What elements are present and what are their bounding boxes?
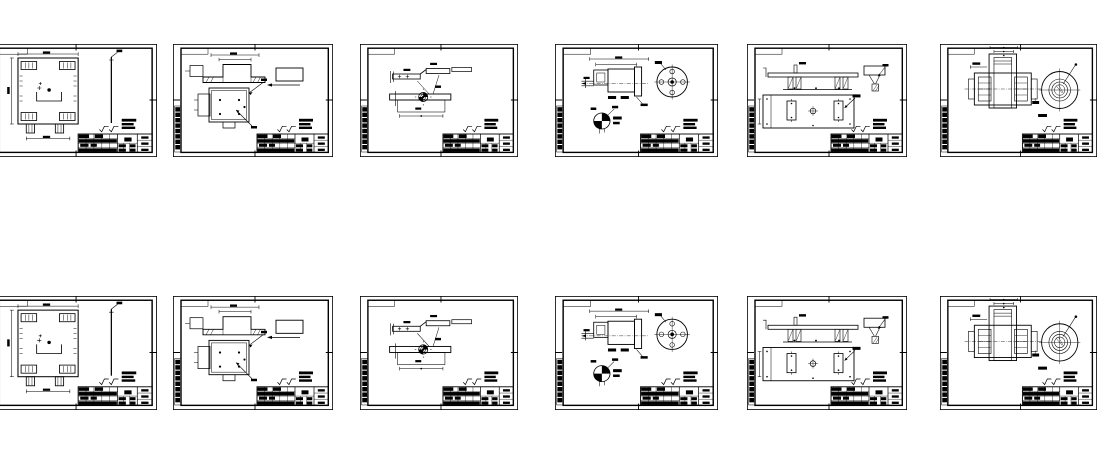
- sheet-canvas: [940, 44, 1097, 157]
- drawing-sheet-r1-c6[interactable]: [940, 44, 1097, 157]
- drawing-sheet-r1-c4[interactable]: [555, 44, 718, 157]
- sheet-canvas: [173, 296, 333, 410]
- sheet-frame: [360, 296, 517, 409]
- sheet-canvas: [0, 296, 157, 410]
- drawing-sheet-r2-c1[interactable]: [0, 296, 157, 410]
- sheet-frame: [555, 296, 717, 409]
- drawing-sheet-r2-c2[interactable]: [173, 296, 333, 410]
- sheet-canvas: [173, 44, 333, 157]
- sheet-canvas: [747, 296, 907, 410]
- sheet-frame: [747, 296, 906, 409]
- drawing-sheet-r1-c2[interactable]: [173, 44, 333, 157]
- sheet-canvas: [0, 44, 157, 157]
- drawing-sheet-r2-c5[interactable]: [747, 296, 907, 410]
- sheet-frame: [940, 44, 1096, 156]
- cad-drawings-gallery: [0, 0, 1104, 461]
- sheet-frame: [360, 44, 517, 156]
- drawing-sheet-r1-c1[interactable]: [0, 44, 157, 157]
- sheet-frame: [173, 44, 332, 156]
- sheet-canvas: [360, 296, 518, 410]
- drawing-sheet-r2-c3[interactable]: [360, 296, 518, 410]
- sheet-frame: [173, 296, 332, 409]
- sheet-frame: [940, 296, 1096, 409]
- sheet-canvas: [747, 44, 907, 157]
- drawing-sheet-r1-c3[interactable]: [360, 44, 518, 157]
- sheet-canvas: [555, 44, 718, 157]
- sheet-canvas: [360, 44, 518, 157]
- sheet-frame: [747, 44, 906, 156]
- sheet-frame: [555, 44, 717, 156]
- sheet-canvas: [940, 296, 1097, 410]
- drawing-sheet-r2-c4[interactable]: [555, 296, 718, 410]
- drawing-sheet-r1-c5[interactable]: [747, 44, 907, 157]
- drawing-sheet-r2-c6[interactable]: [940, 296, 1097, 410]
- sheet-canvas: [555, 296, 718, 410]
